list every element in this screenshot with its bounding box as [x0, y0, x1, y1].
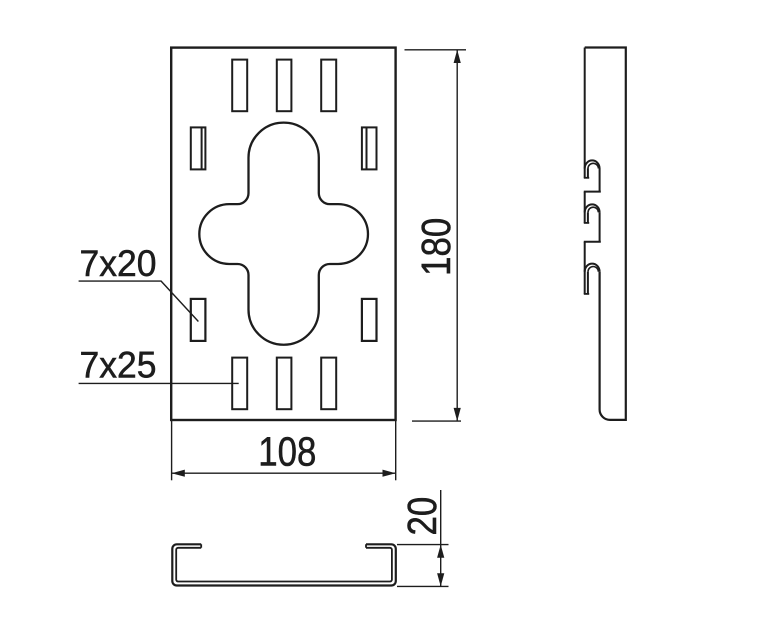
svg-text:108: 108	[258, 430, 316, 475]
svg-text:20: 20	[400, 497, 445, 536]
svg-text:180: 180	[415, 218, 460, 276]
svg-text:7x20: 7x20	[80, 242, 157, 284]
svg-text:7x25: 7x25	[80, 344, 157, 386]
